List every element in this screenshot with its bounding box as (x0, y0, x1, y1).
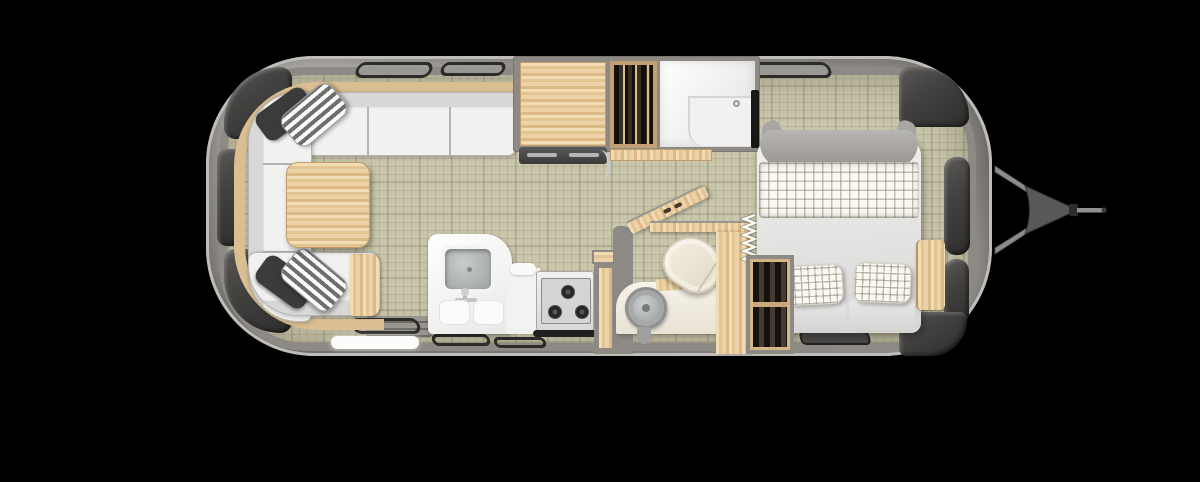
burner (548, 305, 562, 319)
window-rear-mid (944, 157, 970, 255)
wall-tv (751, 90, 759, 148)
bath-sink-drain (642, 304, 650, 312)
shower-step (688, 96, 754, 146)
tow-hitch (985, 152, 1110, 268)
sink-drain (467, 267, 472, 272)
bed-pillow (853, 262, 911, 304)
dinette-table (286, 162, 370, 248)
trailer-floor-plan (0, 0, 1200, 482)
door-latch (674, 202, 683, 209)
bath-sink-stand (637, 327, 651, 344)
hitch-head (1025, 186, 1072, 234)
oven-handle (527, 153, 557, 157)
bedroom-wardrobe (746, 255, 794, 354)
sofa-end-panel (350, 254, 380, 316)
oven-handle (569, 153, 599, 157)
bath-shelf (650, 221, 750, 232)
oven-front (519, 147, 607, 164)
wardrobe-shelf (753, 302, 787, 307)
vent-outline-3 (493, 337, 548, 348)
faucet-base (461, 288, 469, 296)
entry-step (331, 336, 419, 349)
galley-counter (520, 62, 606, 146)
window-top-2 (439, 62, 508, 76)
counter-tray (473, 300, 504, 325)
burner (561, 285, 575, 299)
cabinet-wood-inset (599, 268, 612, 348)
kitchen-counter-extension (506, 268, 540, 334)
hitch-coupler (1069, 204, 1078, 216)
counter-towel (510, 263, 536, 275)
bath-sink (625, 287, 667, 329)
stove-handle (533, 330, 597, 337)
window-top-1 (353, 62, 434, 78)
wardrobe-closet (610, 61, 657, 148)
cooktop-range (536, 271, 594, 331)
bed-plaid-runner (759, 162, 919, 218)
cooktop-panel (541, 278, 591, 324)
hitch-rod (1077, 208, 1103, 213)
kitchen-sink (441, 245, 495, 293)
hanger-rod (635, 65, 637, 144)
cushion-seam (367, 107, 369, 155)
hanger-rod (623, 65, 625, 144)
door-latch (663, 207, 672, 214)
cabinet-wood-trim (610, 149, 712, 161)
cushion-seam (449, 107, 451, 155)
bedroom-floor-mat (799, 331, 872, 345)
hanger-rod (647, 65, 649, 144)
burner (575, 305, 589, 319)
vent-outline-2 (431, 334, 492, 346)
hitch-rod-tip (1101, 207, 1106, 212)
shower-room (660, 61, 755, 147)
window-rear-top (899, 67, 969, 127)
bedroom-wardrobe-interior (750, 259, 790, 350)
shower-drain (733, 100, 740, 107)
counter-tray (439, 300, 470, 325)
nightstand (916, 240, 945, 310)
